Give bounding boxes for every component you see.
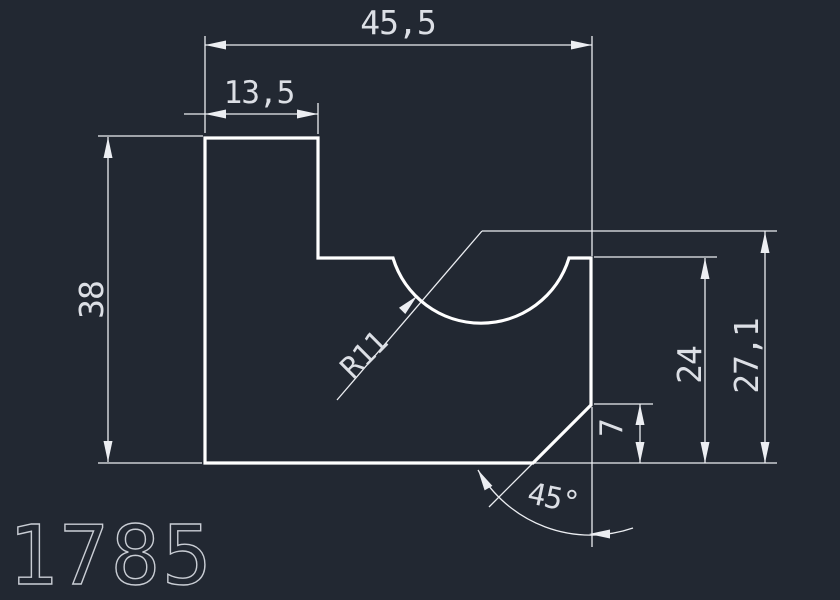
dimension-arrowhead bbox=[571, 41, 592, 50]
dimension-arrowhead bbox=[104, 137, 113, 158]
dimension-label-right-edge-height: 24 bbox=[670, 346, 709, 384]
dimension-arrowhead bbox=[761, 442, 770, 463]
technical-drawing: 45,5 13,5 38 R11 24 27,1 7 45° 1785 bbox=[0, 0, 840, 600]
dimension-arrowhead bbox=[104, 441, 113, 462]
dimension-arrowhead bbox=[701, 442, 710, 463]
part-outline bbox=[205, 138, 591, 463]
dimension-arrowhead bbox=[701, 258, 710, 279]
dimension-arrowhead bbox=[636, 442, 645, 463]
dimension-label-chamfer-angle: 45° bbox=[524, 476, 581, 521]
dimension-arrowhead bbox=[636, 404, 645, 425]
dimension-label-overall-width: 45,5 bbox=[360, 3, 435, 42]
dimension-label-chamfer-height: 7 bbox=[594, 419, 630, 437]
dimension-label-overall-height: 38 bbox=[72, 281, 111, 319]
drawing-number: 1785 bbox=[8, 509, 213, 600]
dimension-geometry bbox=[98, 36, 777, 547]
dimension-arrowhead bbox=[761, 232, 770, 253]
dimension-label-notch-radius: R11 bbox=[334, 325, 395, 386]
dimension-arrowhead bbox=[205, 41, 226, 50]
dimension-label-notch-center-height: 27,1 bbox=[727, 318, 766, 393]
dimension-arrowhead bbox=[399, 296, 417, 314]
dimension-label-step-width: 13,5 bbox=[224, 75, 295, 111]
dimension-arrowhead bbox=[297, 110, 318, 119]
